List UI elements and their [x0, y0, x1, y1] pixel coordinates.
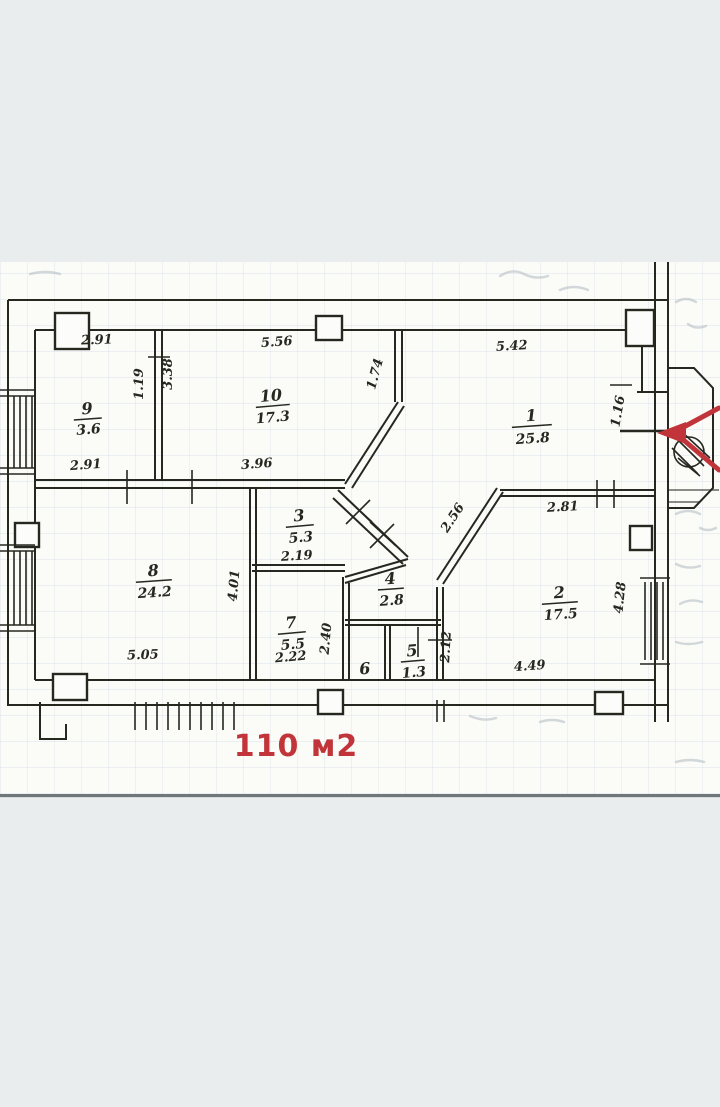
dim-room1-left: 1.74	[364, 357, 387, 391]
room1-area: 25.8	[514, 430, 550, 448]
room3-number: 3	[293, 506, 306, 526]
floor-plan-drawing: 2.91 5.56 5.42 2.91 3.96 1.19 3.38 1.74 …	[0, 262, 720, 797]
dim-partition-left: 1.19	[132, 368, 147, 400]
dim-top-room10: 5.56	[260, 334, 293, 351]
room4-area: 2.8	[378, 592, 405, 610]
flue-ticks	[437, 700, 444, 722]
dim-room2-right: 4.28	[611, 581, 629, 614]
dim-top-room1: 5.42	[496, 338, 528, 355]
entry-step	[40, 702, 66, 739]
dim-room2-diagonal: 2.56	[438, 501, 468, 537]
room3-area: 5.3	[288, 529, 314, 547]
room8-number: 8	[146, 561, 159, 581]
left-window-upper	[0, 390, 35, 474]
total-area-label: 110 м2	[234, 729, 358, 764]
room-label-10: 10 17.3	[253, 385, 291, 428]
room7-area: 5.5	[280, 636, 306, 654]
room-label-4: 4 2.8	[376, 568, 405, 610]
room-label-3: 3 5.3	[284, 505, 315, 547]
door-opening-marks	[346, 498, 396, 548]
dim-room9-width: 2.91	[68, 457, 102, 474]
dim-room2-top: 2.81	[546, 499, 579, 516]
left-window-lower	[0, 545, 35, 631]
room1-number: 1	[525, 406, 537, 426]
dim-room1-niche: 1.16	[608, 394, 628, 428]
room4-number: 4	[384, 569, 396, 589]
scanned-floor-plan-sheet: 2.91 5.56 5.42 2.91 3.96 1.19 3.38 1.74 …	[0, 262, 720, 797]
room-label-8: 8 24.2	[134, 560, 173, 602]
room9-area: 3.6	[76, 421, 102, 439]
dim-room2-bottom: 4.49	[513, 658, 546, 675]
room6-number: 6	[358, 659, 371, 679]
red-arrow-left-icon	[657, 408, 719, 470]
dim-room8-bottom: 5.05	[127, 647, 159, 663]
dim-partition-right: 3.38	[161, 358, 176, 390]
room8-area: 24.2	[136, 584, 172, 602]
room-label-9: 9 3.6	[72, 398, 103, 439]
dim-block-left: 2.40	[318, 622, 336, 656]
dim-block-right: 2.12	[438, 631, 455, 664]
room7-number: 7	[285, 613, 298, 633]
dim-hall-height: 4.01	[226, 569, 244, 602]
room-label-7: 7 5.5	[276, 612, 307, 654]
room-label-5: 5 1.3	[399, 640, 427, 682]
bottom-railing-hatch	[135, 702, 234, 730]
room-label-1: 1 25.8	[511, 405, 554, 449]
room5-area: 1.3	[401, 664, 427, 682]
room10-number: 10	[259, 385, 283, 406]
bleed-through-marks	[30, 271, 716, 762]
dim-room3-width: 2.19	[280, 548, 313, 565]
dim-top-room9: 2.91	[80, 332, 113, 348]
top-gray-band	[0, 0, 720, 262]
room-label-6: 6	[358, 659, 371, 679]
room5-number: 5	[406, 641, 419, 661]
bottom-gray-band	[0, 797, 720, 1107]
room2-area: 17.5	[543, 606, 578, 624]
screenshot-page: 2.91 5.56 5.42 2.91 3.96 1.19 3.38 1.74 …	[0, 0, 720, 1107]
dim-room10-width: 3.96	[240, 456, 273, 473]
room10-area: 17.3	[255, 408, 291, 427]
room9-number: 9	[81, 399, 93, 419]
room2-number: 2	[552, 583, 565, 603]
room-label-2: 2 17.5	[541, 582, 580, 624]
